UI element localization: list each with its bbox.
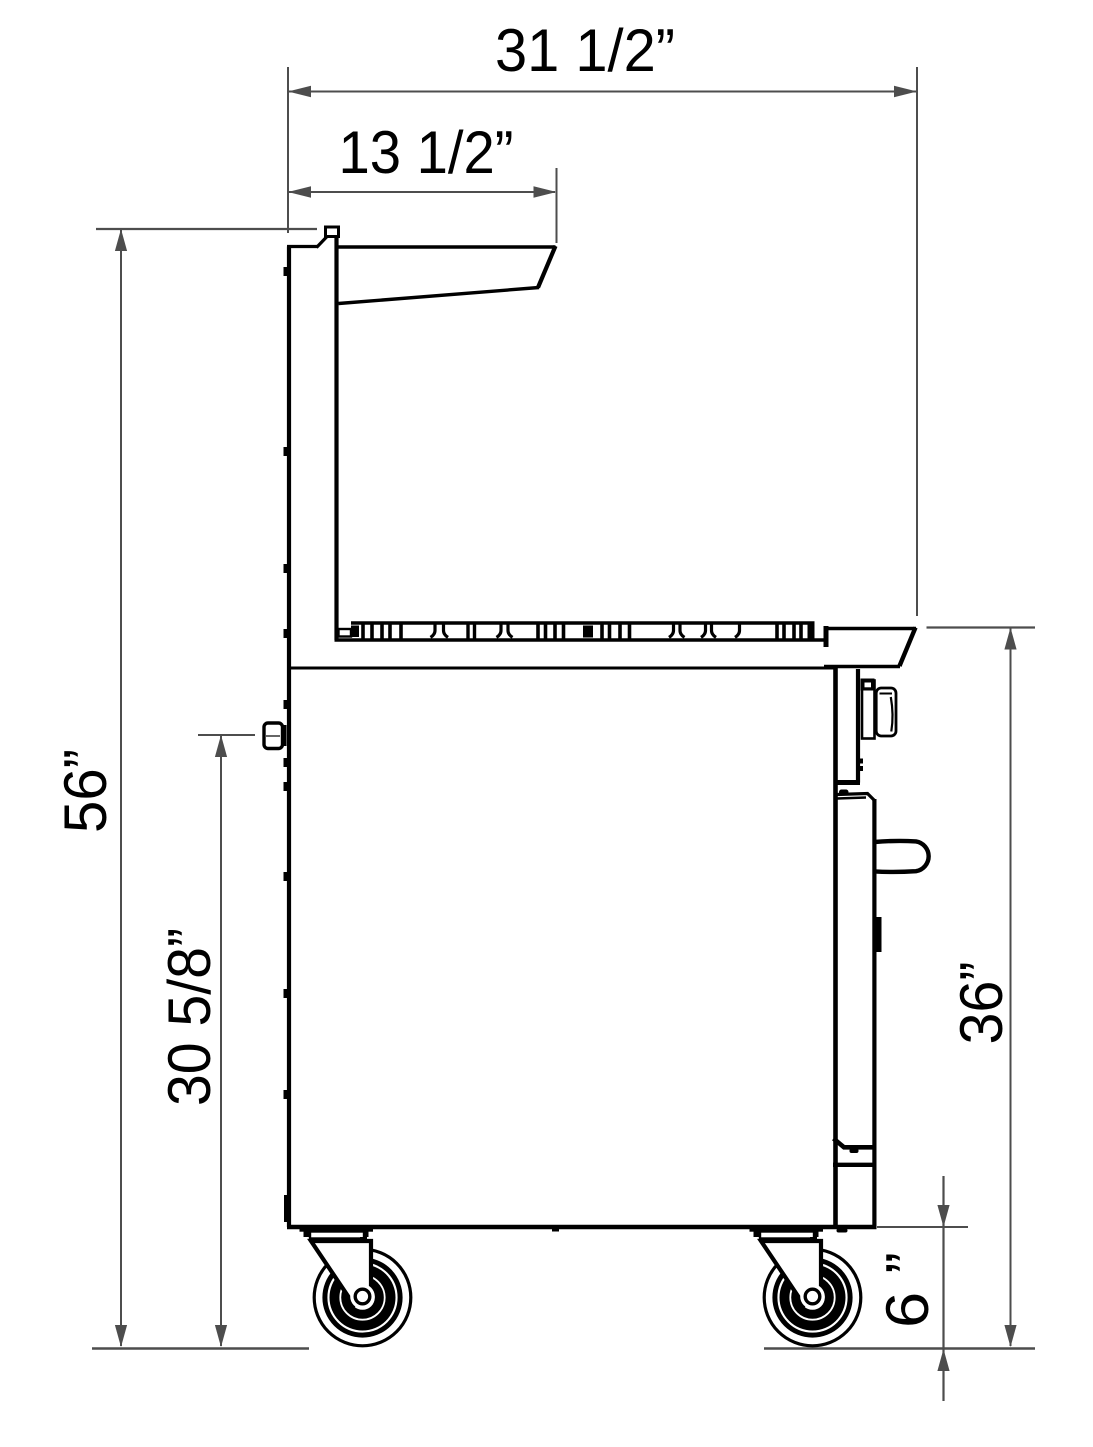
svg-text:13 1/2”: 13 1/2” xyxy=(339,119,514,186)
svg-text:6 ”: 6 ” xyxy=(874,1252,941,1328)
svg-text:36”: 36” xyxy=(948,962,1015,1045)
svg-text:30 5/8”: 30 5/8” xyxy=(156,928,223,1106)
svg-text:31 1/2”: 31 1/2” xyxy=(495,17,675,84)
svg-text:56”: 56” xyxy=(52,749,119,833)
